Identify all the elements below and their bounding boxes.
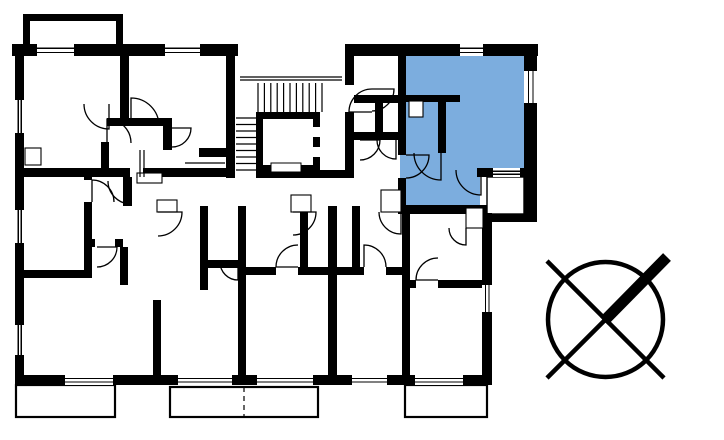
door-swing (276, 245, 298, 267)
door-swing (84, 104, 109, 129)
door-swing (158, 212, 182, 236)
north-arrow-arm (604, 257, 667, 321)
elevator-layer (256, 112, 320, 172)
door-swing (379, 212, 401, 234)
door-swing (364, 245, 386, 267)
north-indicator (547, 257, 667, 378)
door-swing (92, 180, 114, 202)
door-swing (449, 228, 466, 245)
door-swing (97, 247, 117, 267)
door-swing (172, 128, 191, 147)
floor-plan-svg (0, 0, 724, 440)
door-swing (416, 258, 438, 280)
floor-plan-page (0, 0, 724, 440)
